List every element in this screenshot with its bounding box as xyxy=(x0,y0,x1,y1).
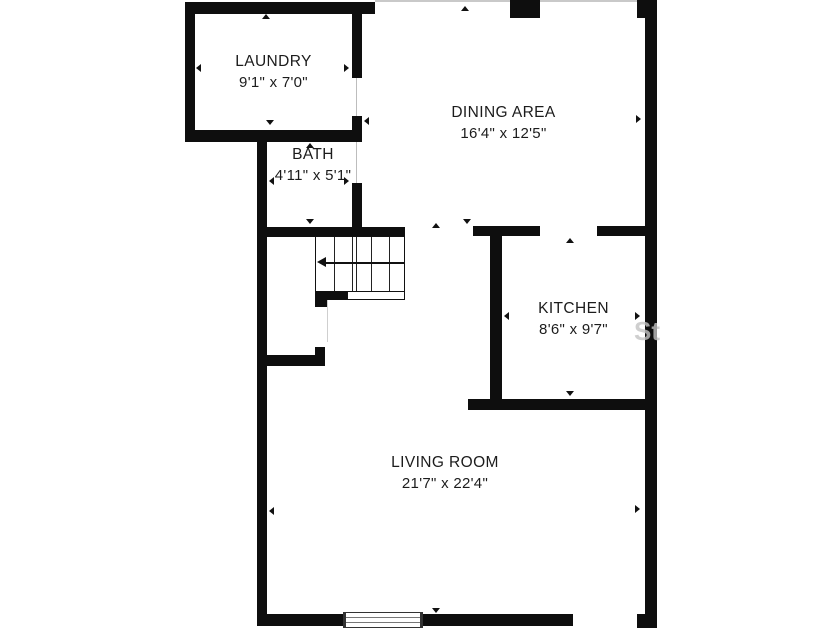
stair-tread-line xyxy=(352,237,353,291)
wall xyxy=(473,226,540,236)
room-dimensions: 8'6" x 9'7" xyxy=(539,319,608,340)
room-name: DINING AREA xyxy=(451,103,555,123)
wall xyxy=(637,614,657,628)
stair-base xyxy=(315,291,348,300)
room-dimensions: 21'7" x 22'4" xyxy=(402,473,488,494)
stair-base xyxy=(315,300,327,307)
room-name: BATH xyxy=(292,145,334,165)
room-label-dining-area: DINING AREA 16'4" x 12'5" xyxy=(362,103,645,144)
wall xyxy=(510,0,540,18)
dimension-marker-down xyxy=(463,219,471,224)
stair-landing xyxy=(347,291,405,300)
room-name: LAUNDRY xyxy=(235,52,312,72)
stairs xyxy=(315,236,405,292)
dimension-marker-down xyxy=(266,120,274,125)
room-dimensions: 9'1" x 7'0" xyxy=(239,72,308,93)
door-opening xyxy=(356,78,357,116)
wall xyxy=(315,347,325,366)
wall xyxy=(185,2,195,140)
wall xyxy=(352,2,362,78)
wall xyxy=(352,116,362,142)
window-pane-line xyxy=(346,622,420,623)
window-pane-line xyxy=(346,617,420,618)
dimension-marker-up xyxy=(566,238,574,243)
stairs-arrow-icon xyxy=(317,257,326,267)
watermark-container: Ste xyxy=(612,314,660,348)
wall xyxy=(185,130,362,142)
wall xyxy=(185,2,375,14)
dimension-marker-up xyxy=(461,6,469,11)
dimension-marker-down xyxy=(432,608,440,613)
dimension-marker-up xyxy=(262,14,270,19)
room-dimensions: 16'4" x 12'5" xyxy=(460,123,546,144)
wall xyxy=(490,226,502,410)
stair-tread-line xyxy=(334,237,335,291)
room-name: LIVING ROOM xyxy=(391,453,499,473)
stairwell-edge-line xyxy=(327,300,328,342)
stairs-direction-arrow xyxy=(326,262,404,264)
room-label-living-room: LIVING ROOM 21'7" x 22'4" xyxy=(267,453,623,494)
dimension-marker-down xyxy=(306,219,314,224)
dimension-marker-left xyxy=(269,507,274,515)
window xyxy=(343,612,423,628)
room-label-bath: BATH 4'11" x 5'1" xyxy=(267,145,359,186)
wall xyxy=(468,399,652,410)
room-name: KITCHEN xyxy=(538,299,609,319)
room-label-laundry: LAUNDRY 9'1" x 7'0" xyxy=(195,52,352,93)
dimension-marker-down xyxy=(566,391,574,396)
watermark: Ste xyxy=(634,316,660,347)
wall xyxy=(257,130,267,626)
room-dimensions: 4'11" x 5'1" xyxy=(275,165,351,186)
stair-tread-line xyxy=(389,237,390,291)
dimension-marker-up xyxy=(432,223,440,228)
floor-plan: LAUNDRY 9'1" x 7'0" BATH 4'11" x 5'1" DI… xyxy=(0,0,840,630)
dimension-marker-right xyxy=(635,505,640,513)
stair-tread-line xyxy=(356,237,357,291)
stair-tread-line xyxy=(371,237,372,291)
wall xyxy=(637,0,657,18)
